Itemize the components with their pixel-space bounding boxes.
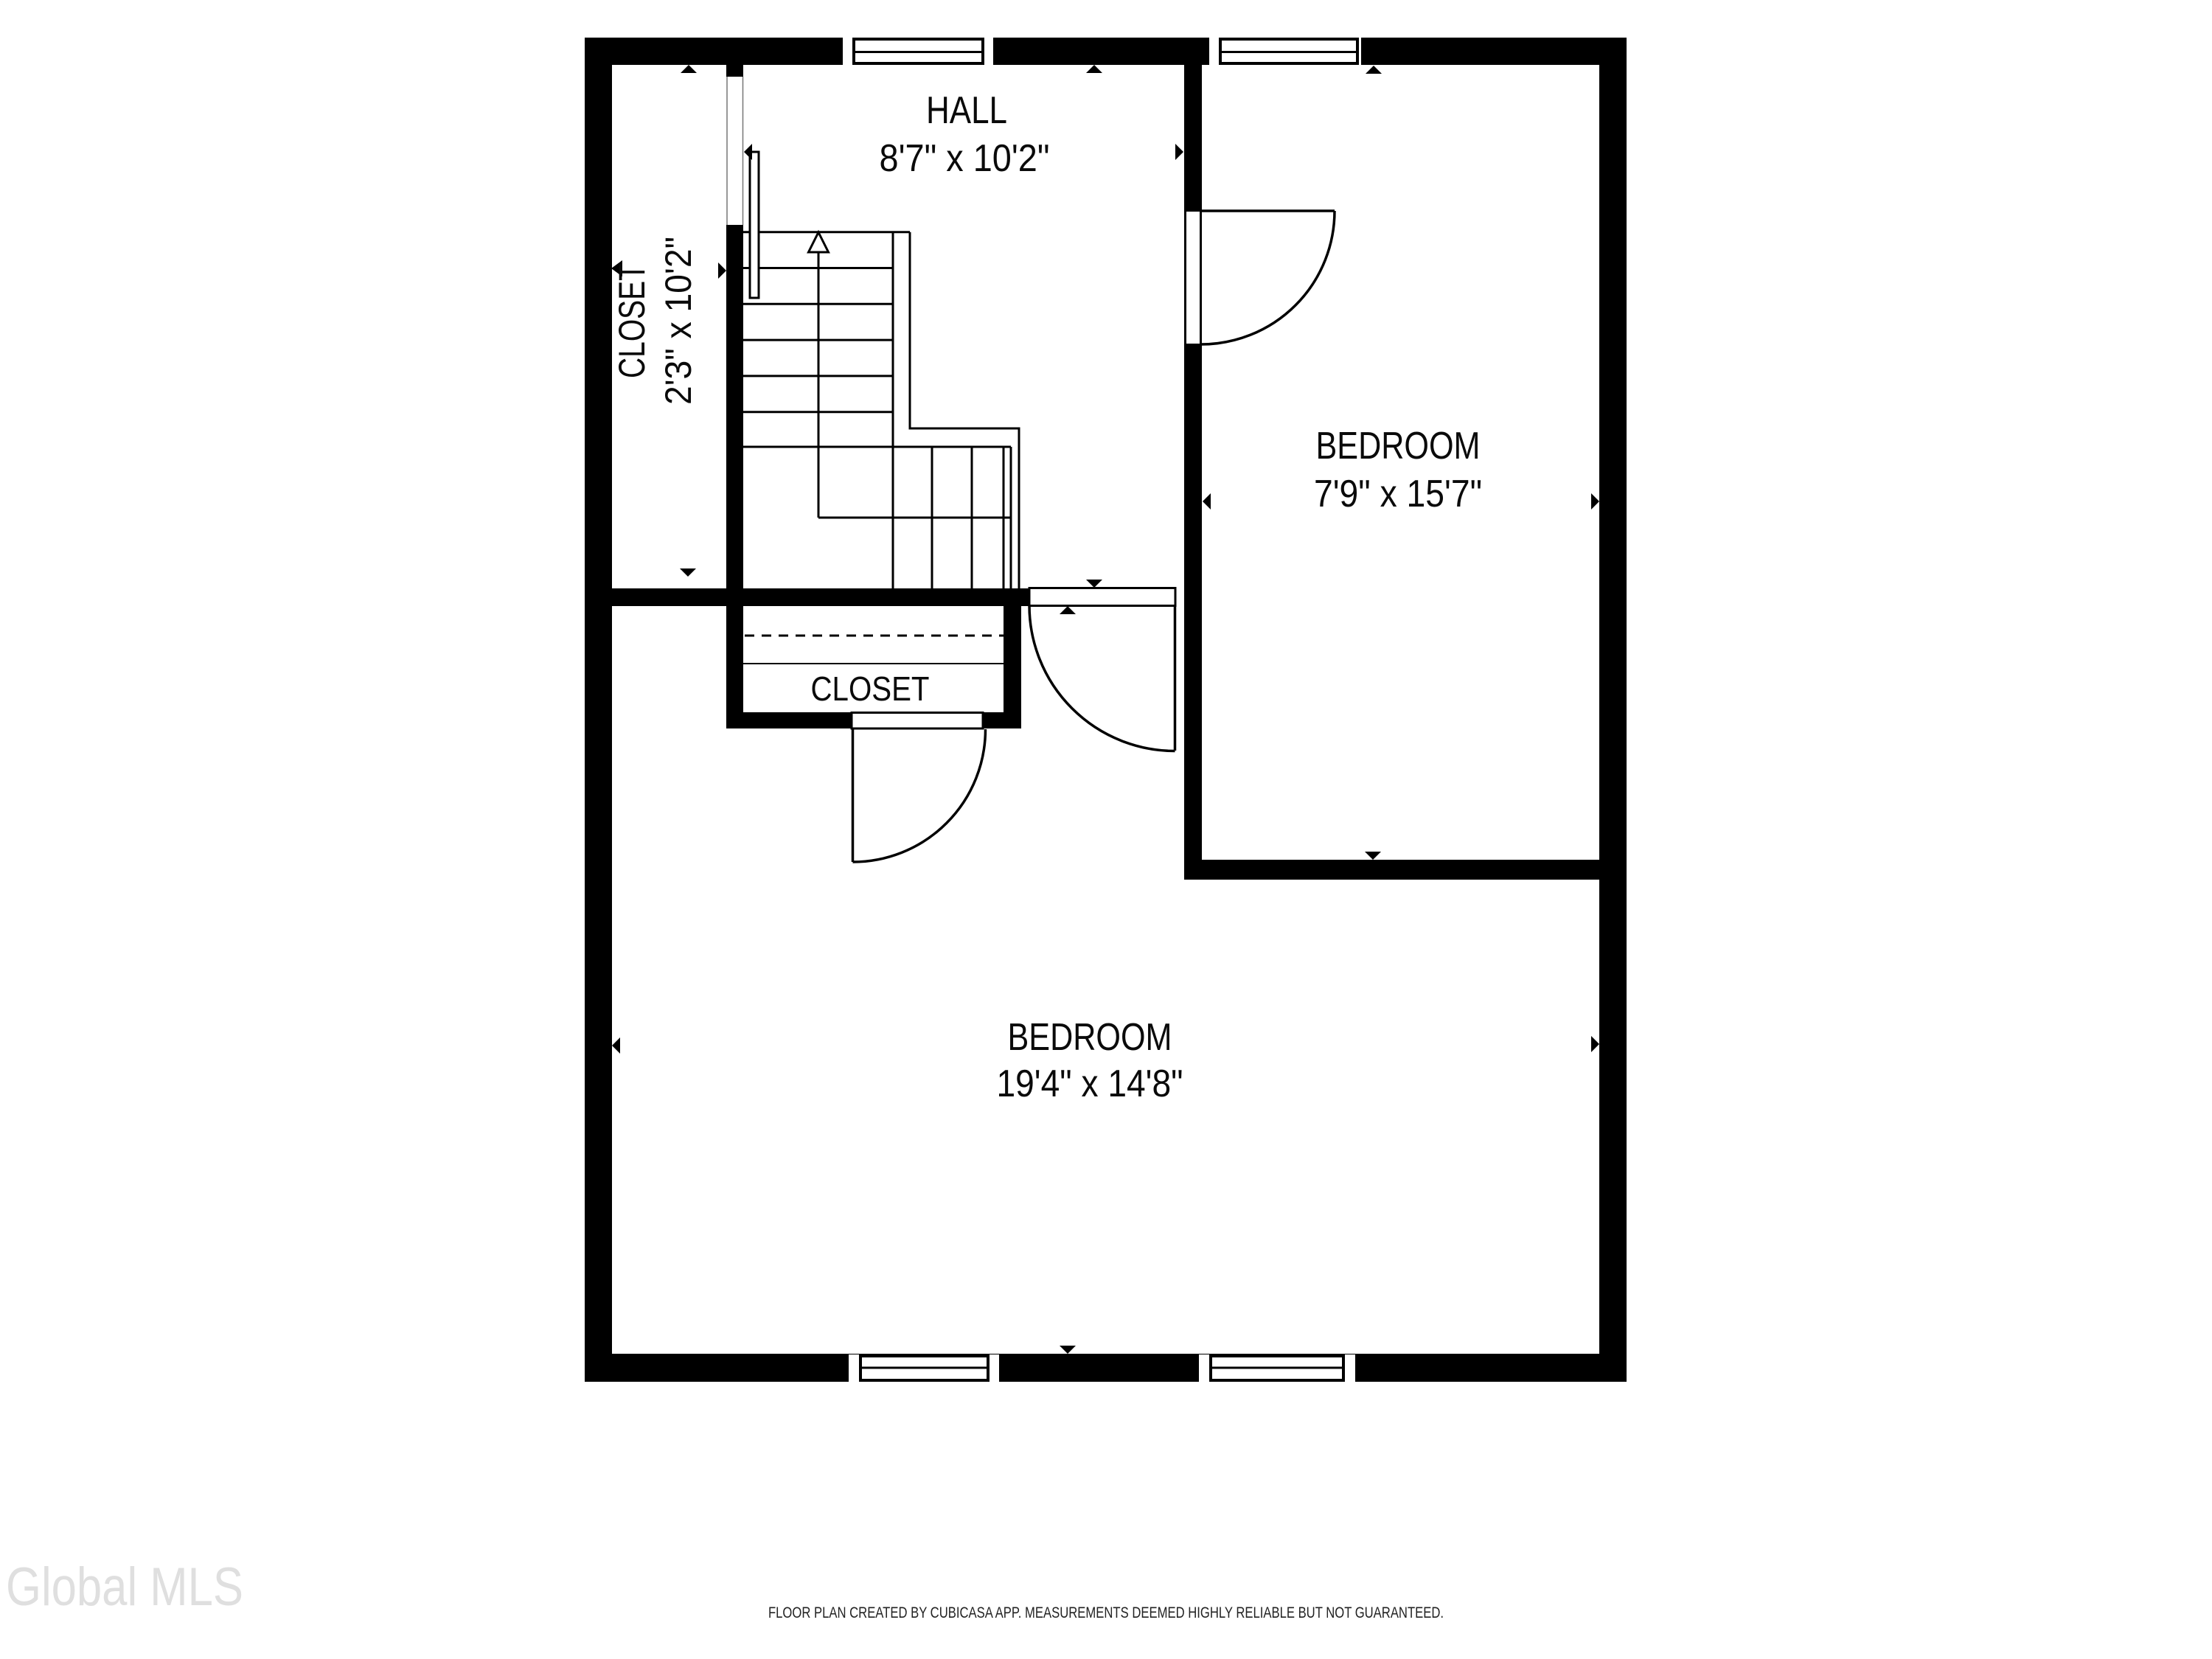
svg-text:BEDROOM: BEDROOM xyxy=(1008,1016,1172,1059)
svg-text:CLOSET: CLOSET xyxy=(811,669,930,708)
svg-text:7'9" x 15'7": 7'9" x 15'7" xyxy=(1314,473,1482,515)
svg-text:19'4" x 14'8": 19'4" x 14'8" xyxy=(997,1062,1183,1105)
svg-text:8'7" x 10'2": 8'7" x 10'2" xyxy=(880,137,1050,180)
svg-text:Global MLS: Global MLS xyxy=(6,1557,243,1617)
svg-text:HALL: HALL xyxy=(926,89,1007,132)
svg-text:CLOSET: CLOSET xyxy=(611,263,653,378)
svg-text:BEDROOM: BEDROOM xyxy=(1316,425,1481,467)
svg-text:2'3" x 10'2": 2'3" x 10'2" xyxy=(658,237,699,405)
svg-text:FLOOR PLAN CREATED BY CUBICASA: FLOOR PLAN CREATED BY CUBICASA APP. MEAS… xyxy=(768,1604,1444,1621)
